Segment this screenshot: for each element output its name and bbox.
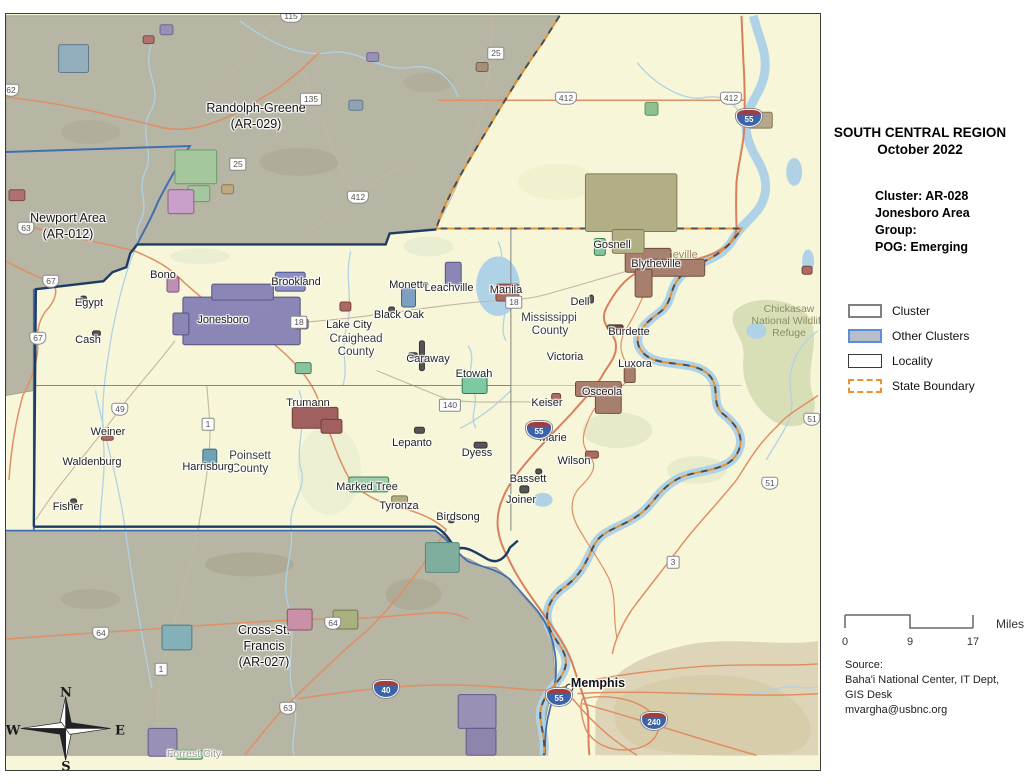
town-polygon: [59, 45, 89, 73]
map-date: October 2022: [822, 141, 1018, 158]
legend-item-locality: Locality: [848, 348, 975, 373]
town-polygon: [589, 295, 593, 303]
town-polygon: [635, 269, 652, 297]
locality-swatch: [848, 354, 882, 368]
town-polygon: [392, 496, 408, 503]
town-polygon: [92, 331, 100, 336]
source-dept: GIS Desk: [845, 688, 1020, 703]
town-polygon: [748, 112, 772, 128]
town-polygon: [409, 353, 418, 358]
town-polygon: [466, 728, 496, 755]
cluster-group: Group:: [875, 222, 970, 239]
town-polygon: [148, 728, 177, 756]
map-art: [6, 14, 820, 770]
town-polygon: [295, 363, 311, 374]
town-polygon: [162, 625, 192, 650]
town-polygon: [536, 469, 542, 474]
cluster-name: Jonesboro Area: [875, 205, 970, 222]
source-heading: Source:: [845, 658, 1020, 673]
town-polygon: [287, 609, 312, 630]
source-attribution: Source: Baha'i National Center, IT Dept,…: [845, 658, 1020, 718]
legend-item-cluster: Cluster: [848, 298, 975, 323]
town-polygon: [173, 313, 189, 335]
town-polygon: [425, 543, 459, 573]
town-polygon: [462, 377, 487, 394]
town-polygon: [160, 25, 173, 35]
region-title: SOUTH CENTRAL REGION: [822, 124, 1018, 141]
town-polygon: [414, 427, 424, 433]
state-boundary-swatch: [848, 379, 882, 393]
town-polygon: [624, 368, 635, 383]
town-polygon: [419, 341, 424, 371]
town-polygon: [802, 266, 812, 274]
town-polygon: [340, 302, 351, 311]
map-title: SOUTH CENTRAL REGION October 2022: [822, 124, 1018, 158]
other-clusters-swatch: [848, 329, 882, 343]
town-polygon: [222, 185, 234, 194]
town-polygon: [612, 229, 644, 253]
town-polygon: [520, 486, 529, 493]
town-polygon: [349, 100, 363, 110]
scale-tick: 17: [967, 636, 979, 648]
town-polygon: [474, 442, 487, 448]
scale-tick: 9: [907, 636, 913, 648]
town-polygon: [167, 277, 179, 292]
cluster-info: Cluster: AR-028 Jonesboro Area Group: PO…: [875, 188, 970, 256]
legend-label: State Boundary: [892, 379, 975, 393]
town-polygon: [81, 296, 87, 303]
town-polygon: [349, 477, 389, 492]
town-polygon: [585, 451, 598, 458]
town-polygon: [275, 272, 305, 291]
town-polygon: [585, 174, 676, 232]
town-polygon: [333, 610, 358, 629]
town-polygon: [402, 288, 416, 307]
town-polygon: [607, 325, 623, 330]
town-polygon: [595, 390, 621, 414]
source-org: Baha'i National Center, IT Dept,: [845, 673, 1020, 688]
cluster-pog: POG: Emerging: [875, 239, 970, 256]
town-polygon: [294, 319, 308, 329]
info-panel: SOUTH CENTRAL REGION October 2022 Cluste…: [822, 0, 1024, 784]
town-polygon: [71, 499, 77, 504]
town-polygon: [101, 436, 113, 440]
town-polygon: [212, 284, 274, 300]
scale-bar: 0 9 17 Miles: [843, 612, 1018, 652]
legend-label: Other Clusters: [892, 329, 969, 343]
town-polygon: [458, 695, 496, 729]
scale-tick: 0: [842, 636, 848, 648]
town-polygon: [175, 150, 217, 184]
town-polygon: [448, 519, 454, 523]
cluster-id: Cluster: AR-028: [875, 188, 970, 205]
town-polygon: [367, 53, 379, 62]
town-polygon: [594, 238, 605, 255]
source-email: mvargha@usbnc.org: [845, 703, 1020, 718]
town-polygon: [389, 307, 395, 312]
legend-label: Locality: [892, 354, 933, 368]
scale-unit: Miles: [996, 617, 1024, 631]
town-polygon: [445, 262, 461, 285]
town-polygon: [552, 393, 561, 400]
town-polygon: [9, 190, 25, 201]
town-polygon: [203, 449, 217, 466]
town-polygon: [321, 419, 342, 433]
town-polygon: [143, 36, 154, 44]
legend-item-other-clusters: Other Clusters: [848, 323, 975, 348]
town-polygon: [645, 102, 658, 115]
town-polygon: [168, 190, 194, 214]
scale-bar-graphic: [843, 612, 993, 632]
town-polygon: [183, 297, 300, 345]
town-polygon: [649, 259, 705, 276]
legend-label: Cluster: [892, 304, 930, 318]
cluster-swatch: [848, 304, 882, 318]
legend: Cluster Other Clusters Locality State Bo…: [848, 298, 975, 398]
town-polygon: [541, 427, 549, 432]
town-polygon: [176, 750, 203, 759]
town-polygon: [496, 284, 519, 301]
legend-item-state-boundary: State Boundary: [848, 373, 975, 398]
memphis-marker: [566, 684, 573, 691]
map-canvas: Randolph-Greene(AR-029)Newport Area(AR-0…: [5, 13, 821, 771]
town-polygon: [476, 63, 488, 72]
